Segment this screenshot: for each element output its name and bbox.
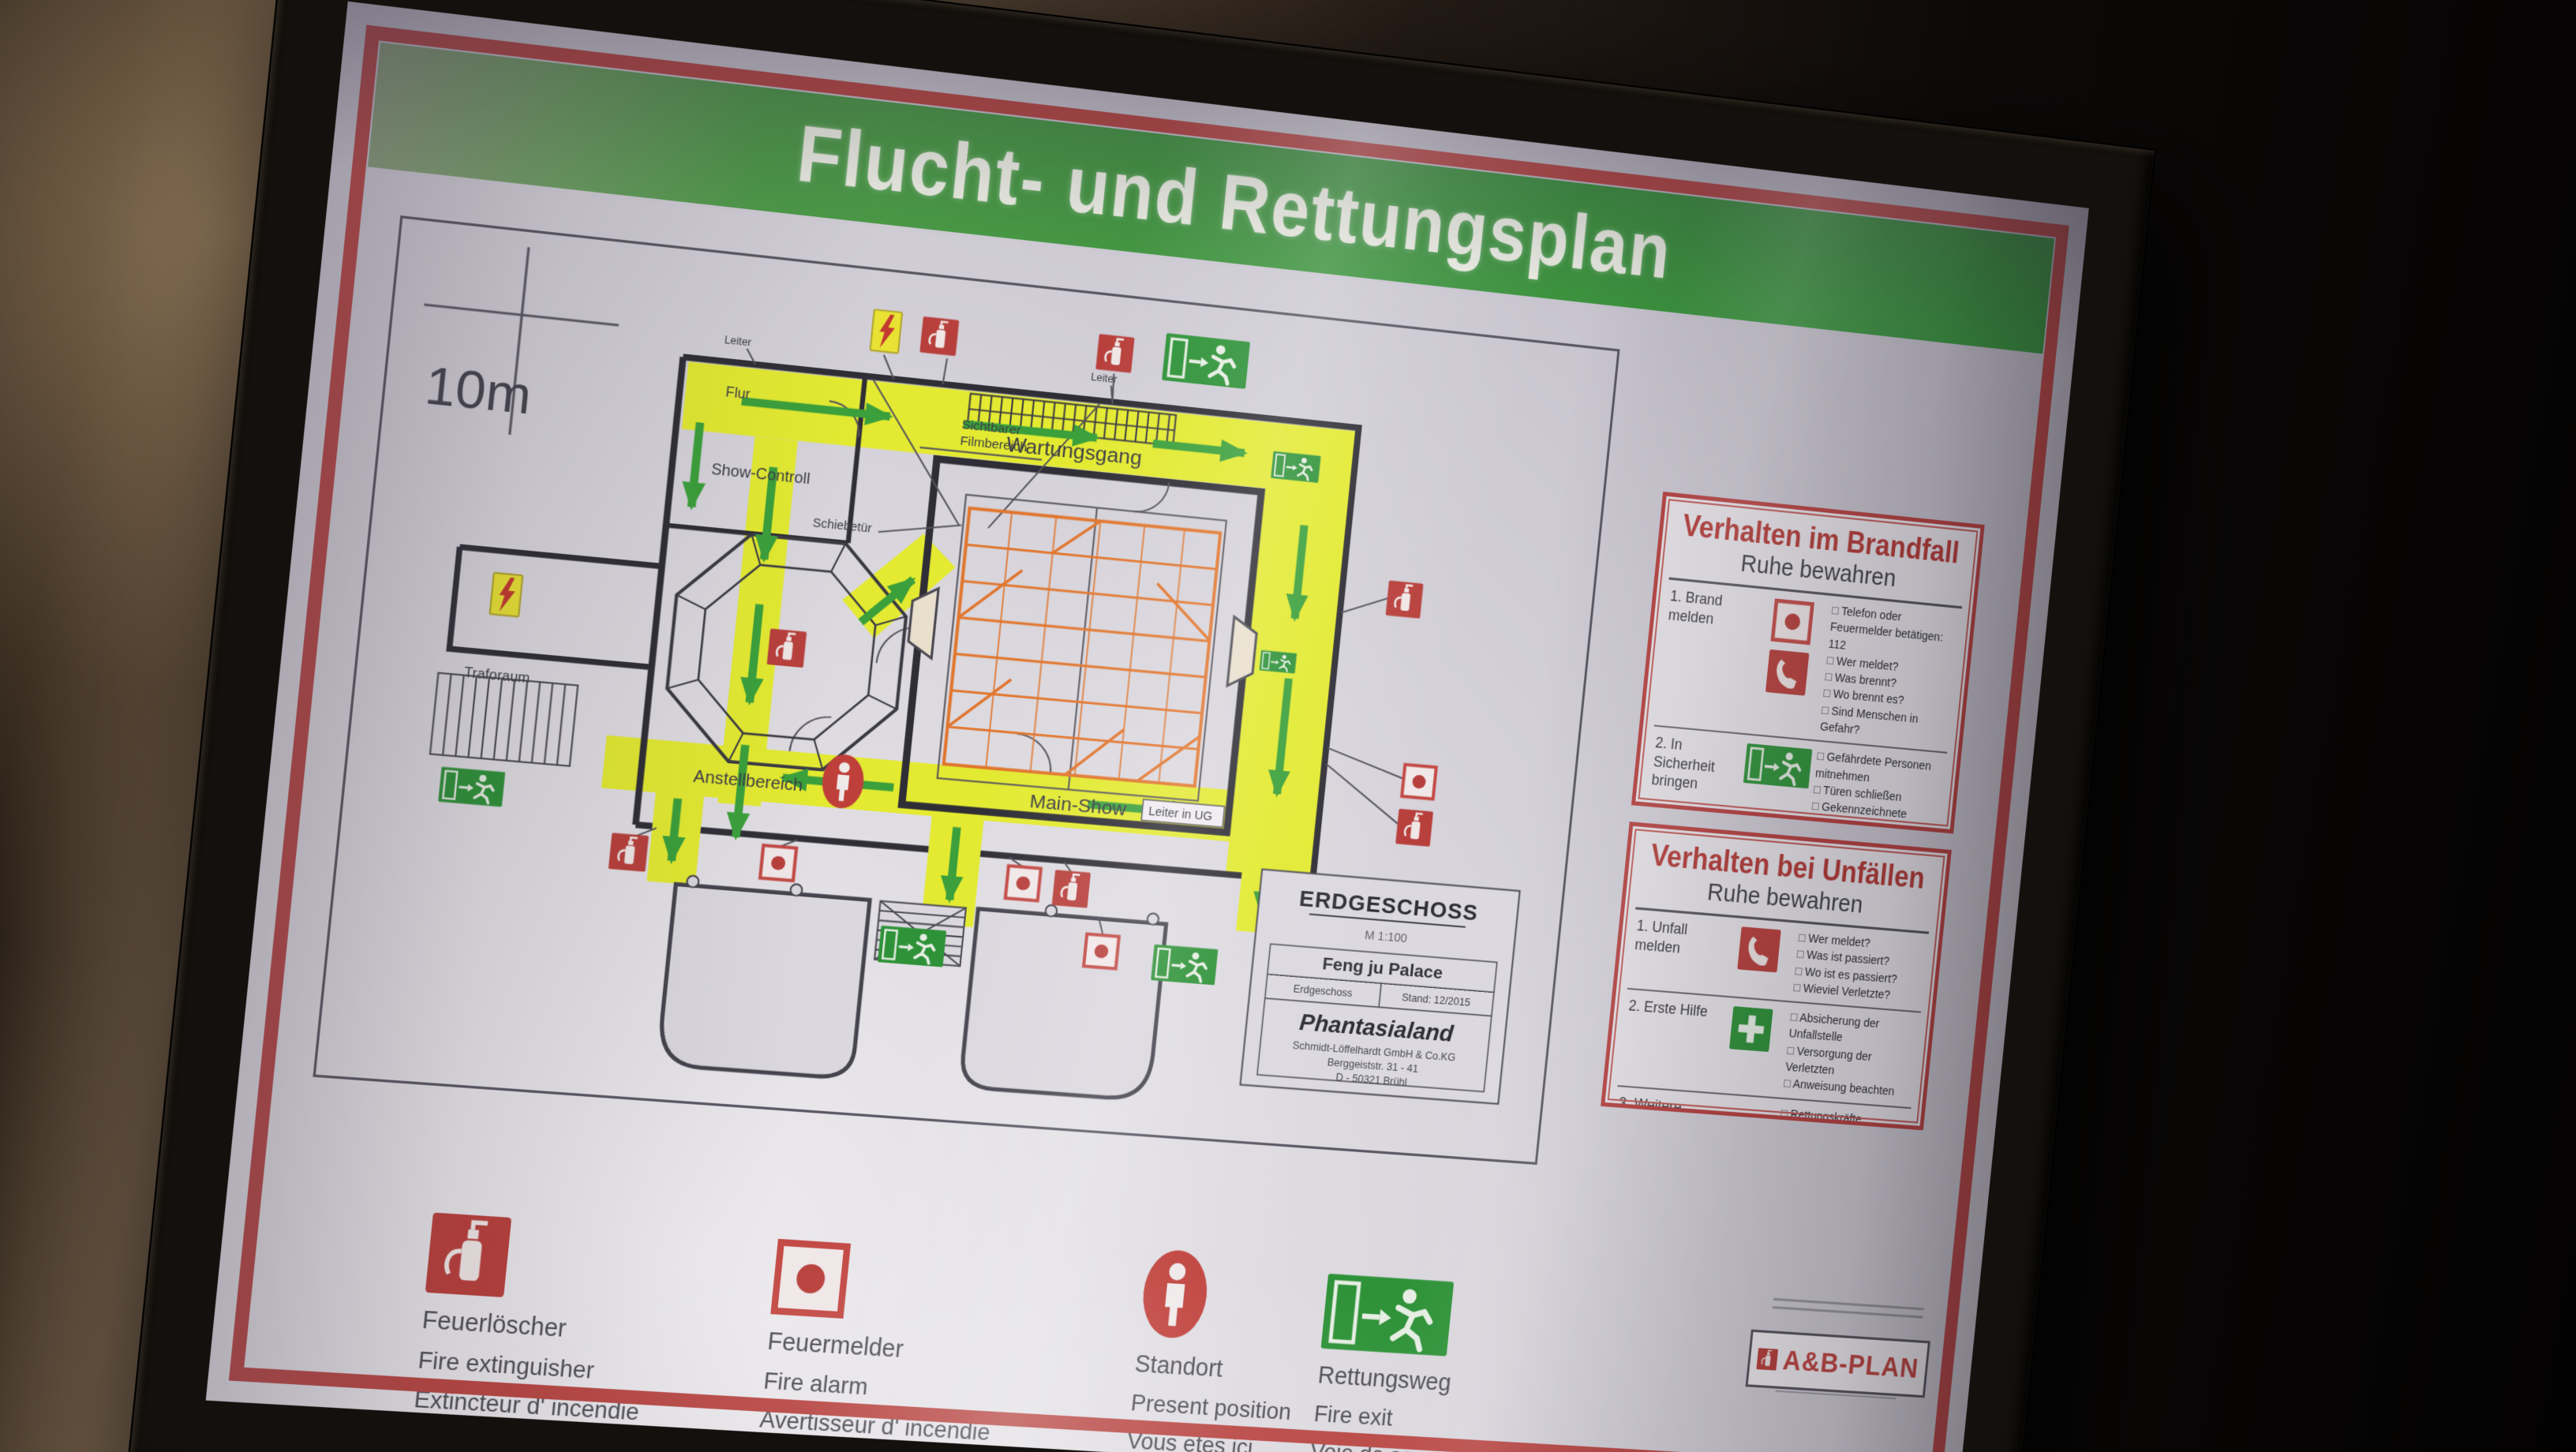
legend-label-en: Fire extinguisher	[417, 1346, 706, 1391]
escape-plan-sign: Flucht- und Rettungsplan 10m	[206, 2, 2089, 1452]
step-label: 2. Erste Hilfe	[1627, 997, 1715, 1022]
fire-alarm-icon	[1402, 765, 1436, 799]
stairs-left	[430, 673, 578, 766]
high-voltage-icon	[871, 309, 903, 353]
room-label: Flur	[725, 384, 751, 402]
step-label: 1. Brand melden	[1668, 586, 1757, 632]
legend-item-escape-route: Rettungsweg Fire exit Voie de secours	[1309, 1259, 1595, 1452]
fire-extinguisher-icon	[608, 833, 649, 872]
plan-drawing-frame: 10m	[313, 215, 1619, 1165]
ride-truss	[944, 508, 1221, 786]
fire-alarm-icon	[1770, 598, 1814, 645]
phone-icon	[1737, 926, 1781, 972]
exit-sign-icon	[1743, 743, 1813, 788]
legend-label-en: Fire exit	[1312, 1400, 1581, 1443]
fire-extinguisher-icon	[425, 1199, 722, 1311]
photo-scene: Flucht- und Rettungsplan 10m	[0, 0, 2576, 1452]
legend-item-fire-extinguisher: Feuerlöscher Fire extinguisher Extincteu…	[413, 1199, 721, 1430]
step-label: 1. Unfall melden	[1634, 916, 1723, 960]
instruction-row: 1. Brand melden Telefon oder Feuermelder…	[1654, 580, 1962, 753]
room-label: Leiter	[1090, 370, 1118, 385]
floor-plan: 10m	[316, 219, 1617, 1162]
page-title: Flucht- und Rettungsplan	[793, 108, 1676, 297]
legend-label-de: Feuermelder	[766, 1328, 1048, 1373]
fire-extinguisher-icon	[1395, 809, 1433, 847]
exit-sign-icon	[1151, 945, 1218, 986]
legend-label-fr: Extincteur d' incendie	[413, 1386, 703, 1430]
extinguisher-logo-icon	[1756, 1342, 1779, 1376]
panel-verhalten-im-brandfall: Verhalten im Brandfall Ruhe bewahren 1. …	[1631, 492, 1985, 833]
fire-extinguisher-icon	[1386, 580, 1424, 618]
room-label: Traforaum	[463, 664, 530, 686]
fire-alarm-icon	[1084, 934, 1119, 969]
phone-icon	[1765, 649, 1809, 696]
high-voltage-icon	[490, 573, 523, 617]
fire-extinguisher-icon	[1095, 334, 1134, 373]
logo-text: A&B-PLAN	[1781, 1345, 1920, 1384]
fire-extinguisher-icon	[919, 316, 959, 356]
first-aid-icon	[1729, 1006, 1773, 1052]
fire-extinguisher-icon	[767, 628, 807, 668]
scale-marker: 10m	[412, 237, 626, 445]
checklist-item: Keinen Aufzug benutzen	[1806, 832, 1934, 834]
exit-sign-icon	[878, 926, 946, 967]
escape-route-icon	[1321, 1259, 1595, 1365]
legend-label-de: Rettungsweg	[1316, 1362, 1585, 1405]
plan-maker-logo: A&B-PLAN	[1746, 1330, 1930, 1398]
legend-label-fr: Avertisseur d' incendie	[758, 1405, 1040, 1449]
checklist-item: Rettungskräfte einweisen	[1778, 1106, 1908, 1130]
legend-item-fire-alarm: Feuermelder Fire alarm Avertisseur d' in…	[758, 1222, 1058, 1449]
legend-label-en: Fire alarm	[762, 1367, 1044, 1411]
fire-extinguisher-icon	[1052, 870, 1091, 908]
scale-label: 10m	[422, 355, 534, 425]
fire-alarm-icon	[760, 845, 796, 881]
legend-label-de: Feuerlöscher	[421, 1306, 711, 1352]
picture-frame: Flucht- und Rettungsplan 10m	[127, 0, 2156, 1452]
fire-alarm-icon	[770, 1222, 1058, 1331]
exit-sign-icon	[438, 767, 505, 807]
info-box: ERDGESCHOSS M 1:100 Feng ju Palace Erdge…	[1241, 870, 1520, 1104]
exit-sign-icon	[1162, 333, 1250, 389]
step-label: 3. Weitere Maßnahmen	[1616, 1093, 1705, 1130]
room-label: Leiter	[724, 333, 752, 348]
logo-caption-lines	[1772, 1298, 1924, 1324]
exit-sign-icon	[1260, 650, 1297, 674]
room-label: Schiebetür	[812, 517, 873, 536]
exit-sign-icon	[1271, 451, 1320, 483]
fire-alarm-icon	[1005, 866, 1041, 900]
panel-verhalten-bei-unfaellen: Verhalten bei Unfällen Ruhe bewahren 1. …	[1601, 821, 1952, 1130]
step-label: 2. In Sicherheit bringen	[1651, 734, 1743, 797]
